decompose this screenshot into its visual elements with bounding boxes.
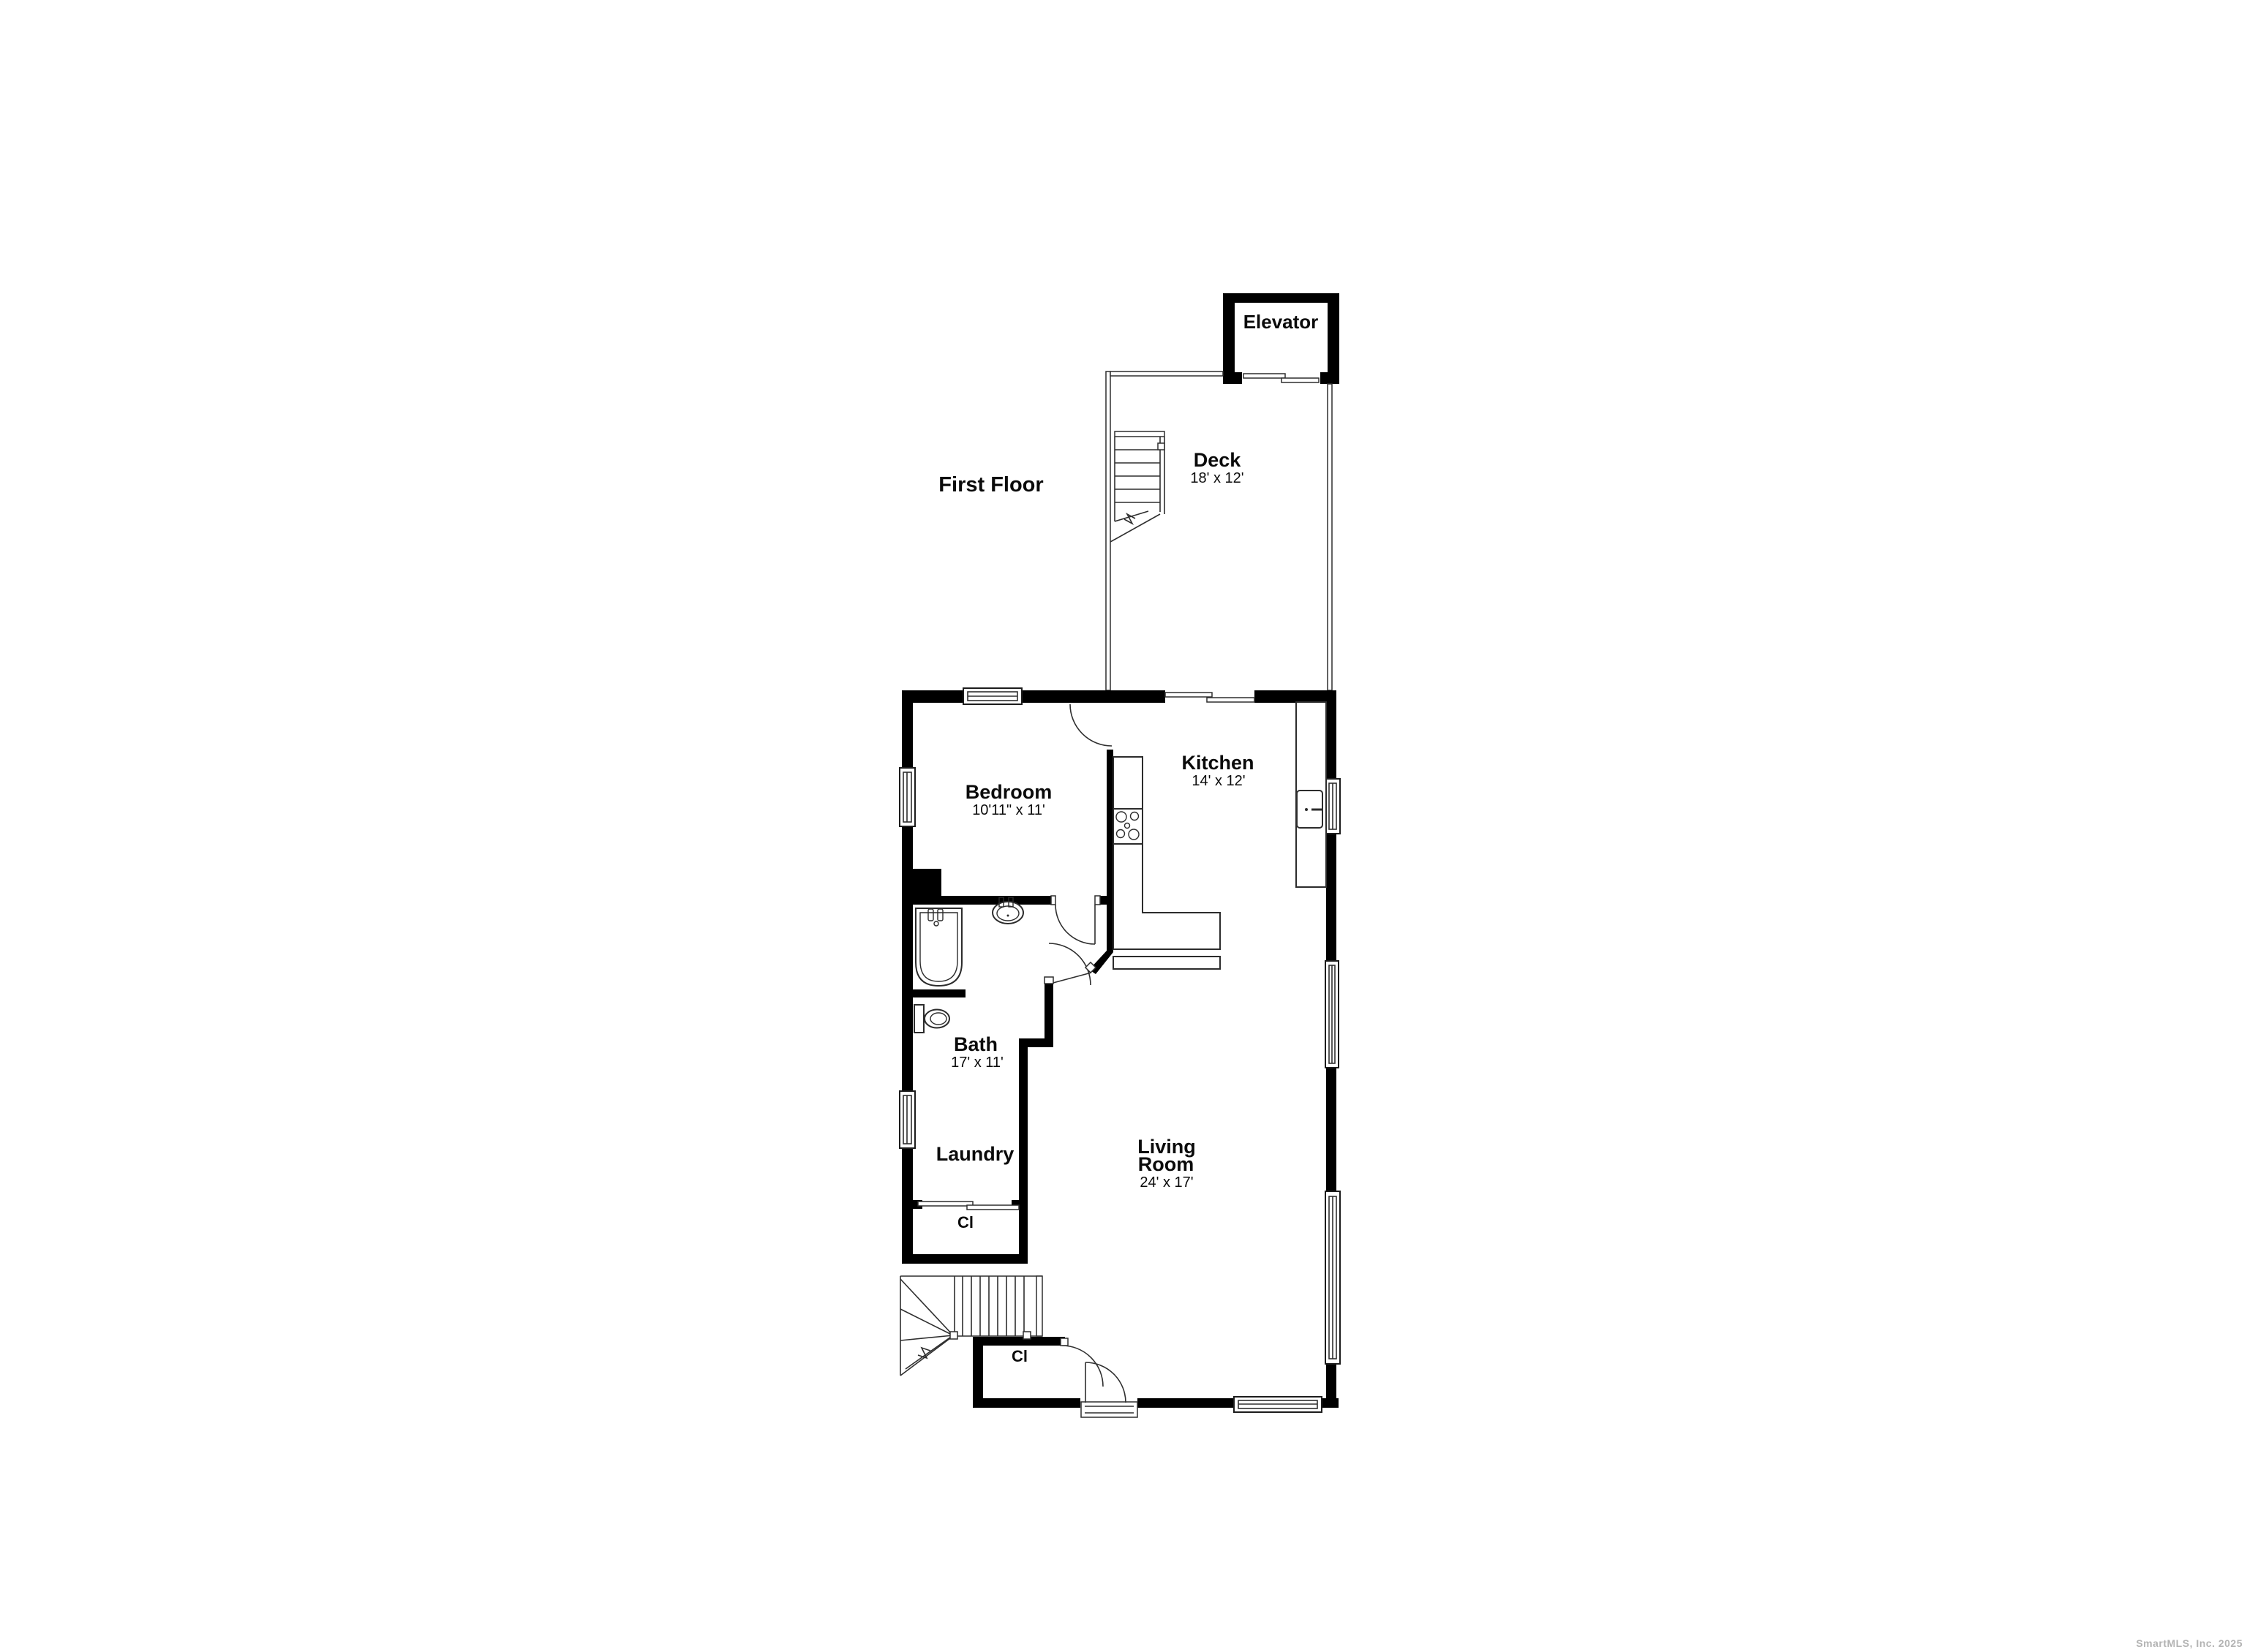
closet-slider-sill <box>918 1202 973 1206</box>
laundry-label: Laundry <box>936 1143 1015 1165</box>
elevator-label: Elevator <box>1243 311 1319 333</box>
deck-door-sill <box>1165 693 1212 697</box>
wall-segment <box>1019 1047 1028 1264</box>
wall-segment <box>902 1254 1028 1264</box>
winder-edge <box>900 1336 953 1376</box>
living-room-dims: 24' x 17' <box>1140 1174 1193 1191</box>
bedroom-dims: 10'11" x 11' <box>972 802 1045 818</box>
closet1-label: Cl <box>957 1213 974 1232</box>
stair-winder <box>900 1276 955 1376</box>
stair-newel <box>950 1332 957 1339</box>
living-bottom-window <box>1234 1397 1322 1412</box>
wall-segment <box>1223 293 1339 303</box>
deck-outline <box>1106 371 1332 690</box>
wall-segment <box>902 1147 913 1264</box>
wall-segment <box>1022 690 1165 703</box>
kitchen-dims: 14' x 12' <box>1192 773 1245 789</box>
laundry-left-window <box>900 1091 915 1148</box>
wall-segment <box>902 826 913 1092</box>
entry-closet-door-arc <box>1062 1346 1103 1387</box>
kitchen-label: Kitchen <box>1181 752 1254 774</box>
stair-stringer <box>1036 1276 1042 1336</box>
wall-segment <box>1137 1398 1235 1408</box>
jamb <box>1095 896 1100 905</box>
wall-segment <box>1254 690 1336 703</box>
floor-plan-drawing: First Floor Elevator Deck 18' x 12' Bedr… <box>0 0 2247 1652</box>
wall-segment <box>902 869 941 898</box>
wall-segment <box>1045 984 1053 1039</box>
interior-walls <box>902 750 1113 1408</box>
sink-drain <box>1007 915 1009 917</box>
wall-segment <box>902 690 913 769</box>
floor-plan-page: First Floor Elevator Deck 18' x 12' Bedr… <box>0 0 2247 1652</box>
wall-segment <box>913 896 1051 905</box>
stair-newel <box>1023 1332 1031 1339</box>
deck-entry-door-arc <box>1070 704 1112 746</box>
wall-segment <box>1328 293 1339 384</box>
page-title: First Floor <box>938 473 1043 497</box>
kitchen-sink <box>1297 791 1322 828</box>
wall-segment <box>1223 372 1242 384</box>
bedroom-label: Bedroom <box>966 781 1053 803</box>
door-jambs <box>1045 896 1100 1346</box>
bath-label: Bath <box>954 1033 998 1055</box>
wall-segment <box>1107 750 1113 952</box>
toilet-bowl <box>925 1010 949 1028</box>
watermark-text: SmartMLS, Inc. 2025 <box>2136 1637 2243 1649</box>
bath-dims: 17' x 11' <box>951 1055 1004 1071</box>
front-door-sill <box>1081 1402 1137 1417</box>
bath-door-leaf <box>1050 973 1091 984</box>
jamb <box>1051 896 1055 905</box>
jamb <box>1045 977 1053 984</box>
bathtub <box>916 908 962 986</box>
wall-segment <box>973 1337 983 1408</box>
deck-door-sill <box>1207 698 1254 702</box>
toilet <box>914 1005 949 1033</box>
wall-segment <box>1321 1398 1339 1408</box>
wall-segment <box>913 989 966 997</box>
deck-edge-right <box>1328 384 1332 690</box>
bedroom-top-window <box>963 688 1022 704</box>
deck-label: Deck <box>1194 449 1242 471</box>
elevator-door-sill <box>1243 374 1285 378</box>
jamb <box>1061 1338 1068 1346</box>
winder-line <box>900 1279 953 1335</box>
closet2-label: Cl <box>1012 1347 1028 1365</box>
front-door-arc <box>1085 1362 1126 1403</box>
winder-line <box>900 1335 953 1340</box>
sill-frame <box>1081 1402 1137 1417</box>
bath-fixtures <box>914 897 1023 1033</box>
wall-segment <box>1326 1067 1336 1191</box>
living-lower-right-window <box>1325 1191 1340 1364</box>
stove <box>1113 809 1143 844</box>
winder-line <box>900 1309 953 1335</box>
deck-dims: 18' x 12' <box>1190 470 1243 486</box>
winder-line <box>906 1335 953 1369</box>
wall-segment <box>973 1398 1080 1408</box>
wall-segment <box>1326 690 1336 780</box>
drain <box>1305 808 1308 811</box>
kitchen-peninsula <box>1113 957 1220 969</box>
wall-segment <box>1320 372 1339 384</box>
stair-newel <box>1158 443 1164 450</box>
kitchen-right-window <box>1325 779 1340 834</box>
wall-segment <box>1019 1038 1053 1047</box>
living-upper-right-window <box>1325 961 1339 1068</box>
elevator-door-sill <box>1281 378 1319 382</box>
bedroom-left-window <box>900 768 915 826</box>
elevator-shaft <box>1223 293 1339 384</box>
living-room-label-line2: Room <box>1138 1153 1194 1175</box>
deck-edge-top <box>1110 371 1223 376</box>
closet-slider-sill <box>967 1205 1019 1210</box>
wall-segment <box>1326 833 1336 961</box>
deck-stairs <box>1110 431 1164 542</box>
deck-edge-left <box>1106 371 1110 690</box>
kitchen-fixtures <box>1113 702 1326 969</box>
stair-landing-edge <box>1115 431 1164 437</box>
wall-segment <box>1223 293 1235 384</box>
bedroom-hall-door-arc <box>1055 905 1095 944</box>
toilet-tank <box>914 1005 924 1033</box>
